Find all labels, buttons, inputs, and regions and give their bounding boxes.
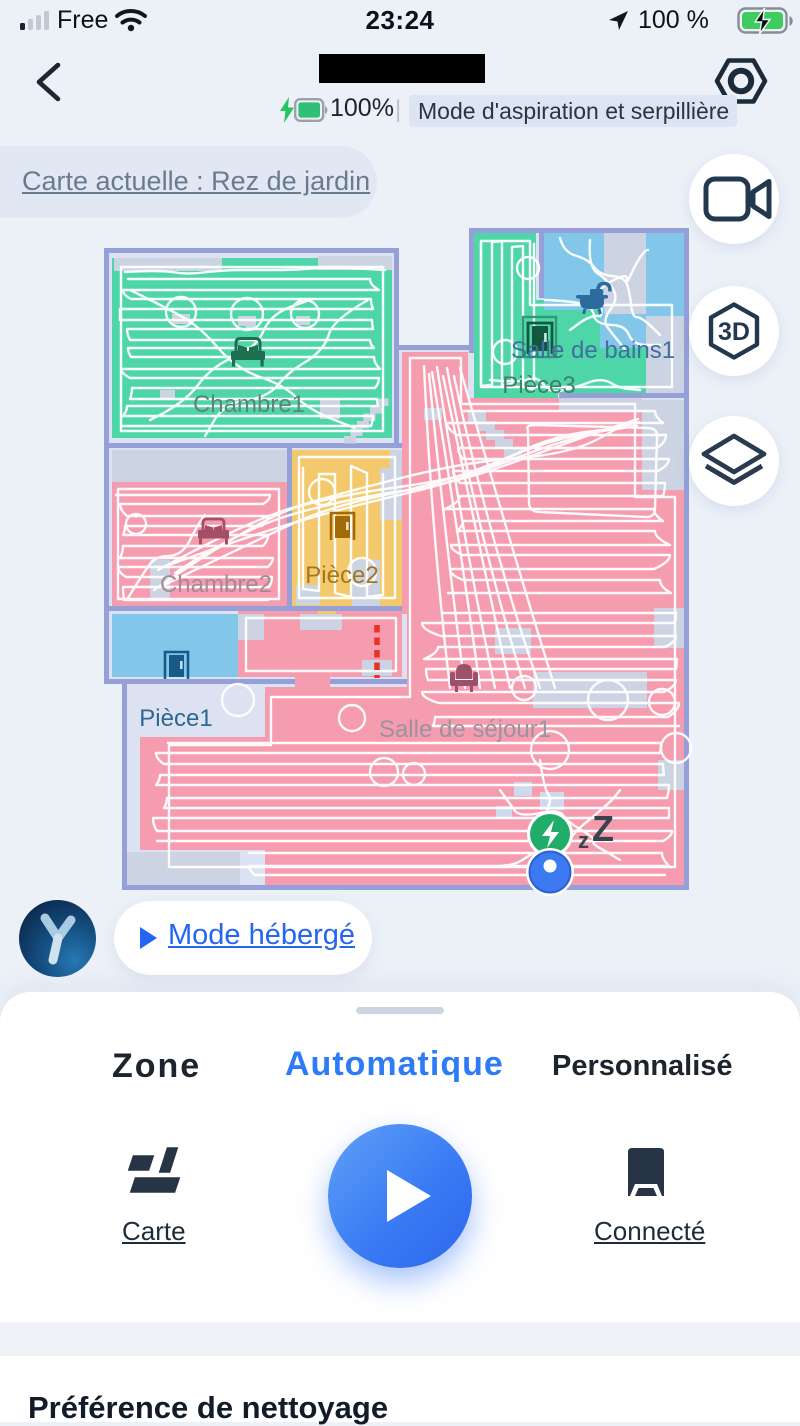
svg-text:Z: Z xyxy=(592,808,614,849)
svg-text:Chambre2: Chambre2 xyxy=(160,571,272,598)
svg-text:Salle de séjour1: Salle de séjour1 xyxy=(379,716,551,743)
svg-text:Pièce1: Pièce1 xyxy=(139,705,212,732)
svg-text:Salle de bains1: Salle de bains1 xyxy=(511,337,675,364)
svg-text:z: z xyxy=(578,828,589,853)
svg-text:Chambre1: Chambre1 xyxy=(193,391,305,418)
svg-text:3D: 3D xyxy=(718,318,750,346)
svg-text:Pièce2: Pièce2 xyxy=(305,562,378,589)
svg-text:Pièce3: Pièce3 xyxy=(502,372,575,399)
